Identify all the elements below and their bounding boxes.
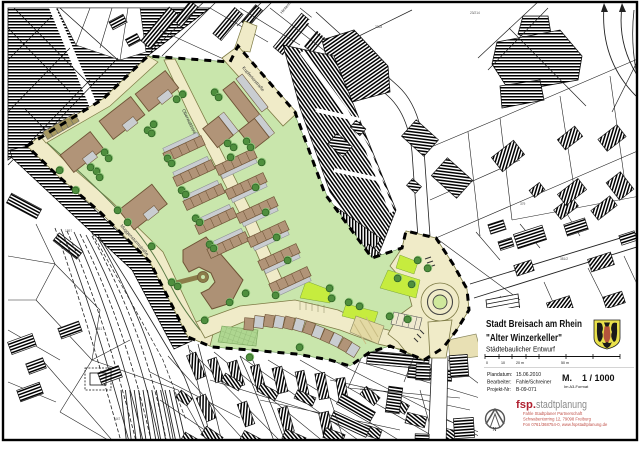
svg-text:20 m: 20 m xyxy=(516,361,524,365)
svg-text:10: 10 xyxy=(501,361,505,365)
svg-text:M.: M. xyxy=(562,373,572,383)
svg-text:Plandatum:: Plandatum: xyxy=(487,372,512,378)
svg-text:stadtplanung: stadtplanung xyxy=(536,399,587,411)
svg-text:fsp.: fsp. xyxy=(516,399,536,411)
svg-text:0: 0 xyxy=(486,361,488,365)
svg-text:Fahle Stadtplaner Partnerschaf: Fahle Stadtplaner Partnerschaft xyxy=(523,411,583,416)
svg-text:Fahle/Schreiner: Fahle/Schreiner xyxy=(516,380,552,386)
svg-text:B-09-071: B-09-071 xyxy=(516,387,537,393)
svg-text:Städtebaulicher Entwurf: Städtebaulicher Entwurf xyxy=(486,347,555,354)
svg-text:Fon 0761/368754-0, www.fspstad: Fon 0761/368754-0, www.fspstadtplanung.d… xyxy=(523,422,608,427)
svg-text:381/2: 381/2 xyxy=(560,257,568,261)
svg-text:23/214: 23/214 xyxy=(470,11,480,15)
svg-text:447: 447 xyxy=(115,417,121,421)
svg-text:379: 379 xyxy=(520,202,526,206)
svg-text:Bearbeiter:: Bearbeiter: xyxy=(487,380,511,386)
svg-text:Im A3-Format: Im A3-Format xyxy=(564,384,589,389)
svg-text:2368: 2368 xyxy=(375,25,382,29)
svg-text:Projekt-Nr:: Projekt-Nr: xyxy=(487,387,511,393)
svg-text:15.06.2010: 15.06.2010 xyxy=(516,372,541,378)
svg-text:1 / 1000: 1 / 1000 xyxy=(582,373,615,383)
svg-text:"Alter Winzerkeller": "Alter Winzerkeller" xyxy=(486,333,562,344)
svg-text:50 m: 50 m xyxy=(561,361,569,365)
svg-text:1897: 1897 xyxy=(65,229,72,233)
svg-text:Stadt Breisach am Rhein: Stadt Breisach am Rhein xyxy=(486,319,582,330)
svg-text:N: N xyxy=(493,427,497,433)
svg-text:Schwabentorring 12, 79098 Frei: Schwabentorring 12, 79098 Freiburg xyxy=(523,417,592,422)
